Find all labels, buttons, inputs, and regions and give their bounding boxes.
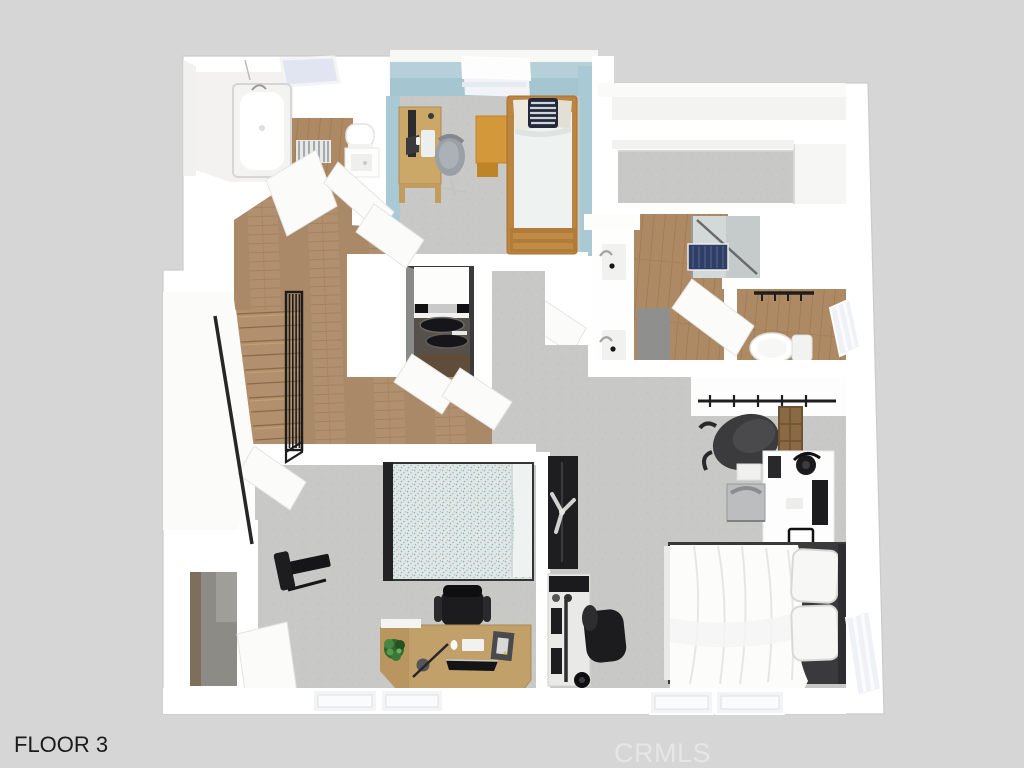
svg-text:FLOOR 3: FLOOR 3 <box>14 732 108 757</box>
svg-text:CRMLS: CRMLS <box>614 738 711 768</box>
